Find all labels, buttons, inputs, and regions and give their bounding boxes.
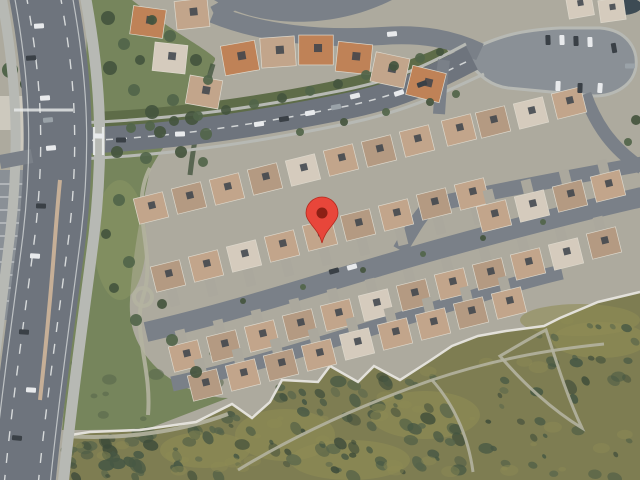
house (260, 36, 297, 68)
grass-patch (420, 366, 437, 376)
tree (193, 111, 203, 121)
car-body (625, 64, 635, 69)
car (19, 329, 29, 335)
tree (436, 48, 444, 56)
scrub-patch (301, 413, 306, 417)
culdesac-parking-court (470, 28, 636, 96)
pin-center-dot (317, 208, 328, 219)
grass-patch (188, 430, 203, 439)
car (30, 253, 40, 259)
scrub-patch (102, 392, 109, 397)
tree (157, 299, 167, 309)
tree (166, 334, 178, 346)
house (299, 35, 334, 65)
car-body (559, 35, 564, 45)
car-body (555, 81, 560, 91)
car (34, 23, 44, 29)
tree (296, 128, 304, 136)
scrub-patch (148, 369, 164, 380)
scrub-patch (140, 416, 147, 421)
tree (109, 283, 119, 293)
scrub-patch (91, 394, 98, 399)
tree (123, 256, 135, 268)
tree (190, 366, 202, 378)
tree (101, 229, 111, 239)
house (220, 40, 259, 75)
car-body (34, 23, 44, 29)
grass-patch (115, 441, 129, 449)
car-body (577, 83, 582, 93)
house (335, 41, 372, 74)
car (175, 131, 185, 136)
tree (118, 38, 130, 50)
grass-patch (316, 435, 330, 443)
tree (145, 121, 155, 131)
tree (426, 98, 434, 106)
grass-patch (441, 466, 459, 477)
car (26, 55, 36, 61)
grass-patch (383, 460, 402, 472)
tree (249, 99, 259, 109)
car (43, 117, 53, 123)
tree (167, 94, 179, 106)
tree (452, 90, 460, 98)
tree (113, 194, 125, 206)
car-body (40, 95, 50, 101)
scrub-patch (549, 471, 558, 477)
grass-patch (559, 467, 567, 472)
tree (145, 105, 159, 119)
roof-courtyard (237, 51, 246, 60)
tree (169, 116, 179, 126)
roof-courtyard (168, 52, 176, 60)
tree (135, 55, 145, 65)
car-body (26, 55, 36, 61)
roof-courtyard (314, 44, 322, 52)
car-body (175, 131, 185, 136)
car (40, 95, 50, 101)
car-body (12, 435, 22, 441)
car-body (573, 36, 578, 46)
tree (240, 298, 246, 304)
tree (190, 54, 202, 66)
car-body (36, 203, 46, 208)
tree (140, 152, 152, 164)
tree (221, 105, 231, 115)
car-body (387, 31, 397, 37)
tree (415, 53, 425, 63)
house (598, 0, 626, 23)
grass-patch (253, 434, 261, 439)
car-body (19, 329, 29, 335)
grass-patch (180, 457, 190, 463)
tree (382, 108, 390, 116)
grass-patch (529, 361, 549, 373)
grass-patch (617, 430, 633, 439)
car (555, 81, 560, 91)
car (12, 435, 22, 441)
tree (540, 219, 546, 225)
car (573, 36, 578, 46)
grass-patch (469, 417, 475, 421)
car (625, 64, 635, 69)
car (587, 37, 592, 47)
car-body (30, 253, 40, 259)
car (577, 83, 582, 93)
car (597, 83, 603, 93)
scrub-patch (98, 411, 109, 419)
tree (340, 118, 348, 126)
car (26, 387, 36, 393)
tree (164, 30, 176, 42)
house-roof (598, 0, 626, 23)
cross-street-west-stub (0, 156, 32, 162)
grass-patch (277, 416, 284, 420)
grass-patch (530, 442, 537, 446)
car (94, 133, 104, 138)
car-body (43, 117, 53, 123)
car (387, 31, 397, 37)
car-body (94, 133, 104, 138)
grass-patch (320, 416, 329, 421)
house (174, 0, 210, 30)
tree (154, 126, 166, 138)
car (46, 145, 56, 151)
tree (147, 15, 157, 25)
tree (389, 61, 399, 71)
tree (101, 11, 115, 25)
car-body (116, 138, 126, 143)
roof-courtyard (352, 52, 361, 61)
roof-courtyard (577, 0, 584, 6)
tree (277, 93, 287, 103)
car (36, 203, 46, 208)
satellite-map[interactable] (0, 0, 640, 480)
grass-patch (593, 443, 610, 453)
tree (203, 75, 213, 85)
tree (305, 86, 315, 96)
car-body (597, 83, 603, 93)
tree (624, 138, 632, 146)
grass-patch (501, 466, 508, 470)
grass-patch (171, 466, 187, 476)
grass-patch (544, 422, 562, 433)
arterial-road (21, 0, 58, 480)
grass-patch (412, 406, 424, 413)
tree (361, 70, 371, 80)
car (545, 35, 550, 45)
car (116, 138, 126, 143)
tree (111, 146, 123, 158)
grass-patch (370, 410, 388, 421)
grass-patch (97, 451, 111, 459)
tree (126, 123, 136, 133)
grass-patch (421, 456, 436, 465)
house (152, 42, 188, 74)
tree (200, 128, 212, 140)
tree (360, 267, 366, 273)
grass-patch (398, 400, 412, 408)
car-body (545, 35, 550, 45)
roof-courtyard (609, 4, 616, 11)
grass-patch (75, 443, 84, 448)
tree (128, 84, 140, 96)
roof-courtyard (202, 86, 211, 95)
tree (300, 284, 306, 290)
car-body (46, 145, 56, 151)
tree (198, 157, 208, 167)
car-body (587, 37, 592, 47)
tree (175, 146, 187, 158)
car-body (26, 387, 36, 393)
tree (420, 251, 426, 257)
tree (103, 61, 117, 75)
grass-patch (165, 451, 182, 461)
tree (333, 79, 343, 89)
car (559, 35, 564, 45)
roof-courtyard (189, 7, 197, 15)
roof-courtyard (276, 46, 285, 55)
scrub-patch (102, 374, 116, 384)
tree (480, 235, 486, 241)
tree (130, 314, 142, 326)
grass-patch (500, 465, 518, 476)
